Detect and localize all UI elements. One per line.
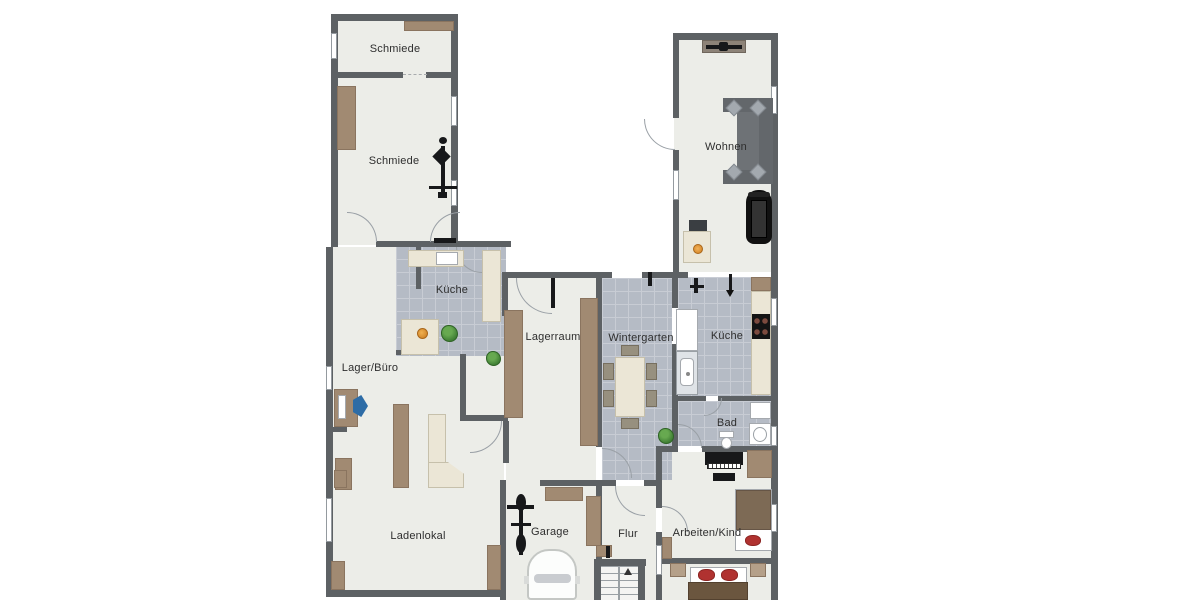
car-mirror (575, 576, 580, 584)
room-label-wohnen: Wohnen (705, 141, 747, 153)
wall (426, 72, 458, 78)
chair (621, 345, 639, 356)
piano-keys (707, 463, 741, 469)
wall (331, 427, 347, 432)
window (326, 366, 332, 390)
nightstand (670, 563, 686, 577)
wall (326, 590, 506, 597)
room-label-lagerraum: Lagerraum (526, 331, 581, 343)
wardrobe (662, 537, 672, 559)
workbench (337, 86, 356, 150)
kitchen-counter (751, 291, 771, 395)
wall (673, 33, 679, 118)
wall (673, 33, 778, 40)
window (451, 96, 457, 126)
room-label-schmiede-main: Schmiede (369, 155, 420, 167)
chair (621, 418, 639, 429)
room-label-wintergarten: Wintergarten (608, 332, 673, 344)
dining-table (615, 357, 645, 417)
sales-counter (428, 414, 446, 470)
window (331, 33, 337, 59)
bed-pillow-red (721, 569, 738, 581)
piano-bench (713, 473, 735, 481)
anvil-icon (438, 192, 447, 198)
room-label-ladenlokal: Ladenlokal (390, 530, 445, 542)
fireplace-cap (689, 220, 707, 231)
window (771, 426, 777, 446)
floor-plan-canvas: Schmiede Schmiede Küche Lager/Büro Lager… (0, 0, 1200, 600)
toilet-bowl (721, 437, 732, 449)
window (451, 180, 457, 206)
bed-pillow-red (698, 569, 715, 581)
door-arc (644, 119, 675, 150)
nightstand (750, 563, 766, 577)
bed-blanket (736, 490, 771, 530)
stair-wall (594, 559, 601, 600)
room-label-garage: Garage (531, 526, 569, 538)
faucet (686, 372, 690, 376)
room-label-flur: Flur (618, 528, 638, 540)
opening-dashed (403, 74, 427, 76)
entry-arrow-line (729, 274, 732, 290)
bed-blanket (688, 582, 748, 600)
shower (750, 402, 771, 419)
staircase-arrow (624, 568, 632, 575)
window (326, 498, 332, 542)
treadmill-console (748, 192, 770, 197)
car-mirror (524, 576, 529, 584)
shelf (504, 310, 523, 418)
room-label-kueche-right: Küche (711, 330, 743, 342)
room-label-kueche-left: Küche (436, 284, 468, 296)
plant (658, 428, 674, 444)
wall (672, 272, 678, 308)
kitchen-sink (436, 252, 458, 265)
car-windshield (534, 574, 571, 583)
shelf (580, 298, 598, 446)
wall (673, 150, 679, 272)
desk-papers (338, 395, 346, 419)
workbench (404, 21, 454, 31)
chair (646, 390, 657, 407)
door-leaf (690, 285, 704, 288)
entry-arrow-head (726, 290, 734, 297)
stove-cooktop (752, 314, 770, 339)
bicycle-icon (519, 503, 523, 555)
stair-wall (638, 559, 645, 600)
chair (646, 363, 657, 380)
staircase-divider (618, 566, 620, 600)
bicycle-icon (511, 523, 531, 526)
wall (656, 446, 662, 508)
washbasin-bowl (753, 427, 767, 442)
shelf (331, 561, 345, 590)
tv-icon (719, 42, 728, 51)
anvil-icon (439, 137, 447, 144)
treadmill-belt (751, 200, 767, 238)
shelf (487, 545, 501, 590)
chair (603, 363, 614, 380)
room-label-schmiede-top: Schmiede (370, 43, 421, 55)
fruit-bowl (417, 328, 428, 339)
bed-pillow-red (745, 535, 761, 546)
room-label-bad: Bad (717, 417, 737, 429)
window (771, 298, 777, 326)
wall (326, 247, 333, 597)
wall (503, 421, 509, 463)
window (673, 170, 679, 200)
plant (486, 351, 501, 366)
wall (656, 575, 662, 600)
wall (718, 396, 772, 401)
stair-post (606, 546, 610, 558)
fridge (676, 309, 698, 351)
door-mat (434, 238, 456, 243)
room-label-lager-buero: Lager/Büro (342, 362, 398, 374)
anvil-icon (429, 186, 457, 189)
door-leaf (648, 272, 652, 286)
shelf (393, 404, 409, 488)
door-leaf (551, 278, 555, 308)
shelf (586, 496, 601, 546)
wall (331, 72, 403, 78)
wardrobe (747, 450, 772, 478)
wall (331, 14, 457, 21)
fireplace-fire (693, 244, 703, 254)
shelf (545, 487, 583, 501)
wall (540, 480, 602, 486)
shelf (334, 470, 347, 488)
room-label-arbeiten-kind: Arbeiten/Kind (673, 527, 742, 539)
plant (441, 325, 458, 342)
wall (460, 354, 466, 420)
counter-wood-top (751, 277, 771, 291)
tall-cabinet (482, 250, 501, 322)
chair (603, 390, 614, 407)
